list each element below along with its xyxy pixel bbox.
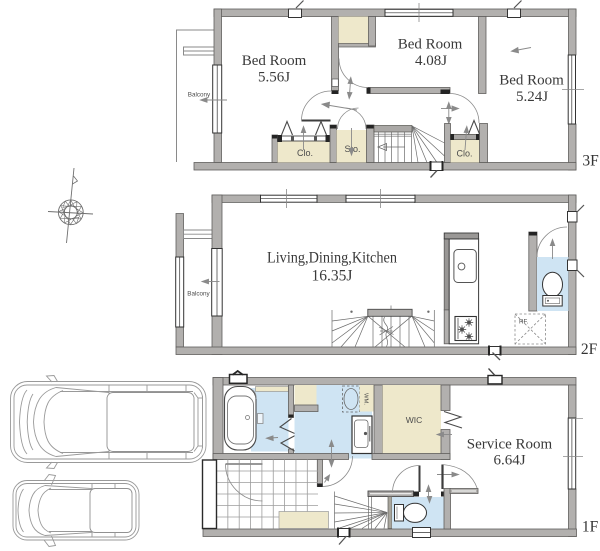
svg-text:RF.: RF.	[519, 319, 529, 326]
svg-text:5.24J: 5.24J	[516, 89, 548, 105]
svg-text:6.64J: 6.64J	[493, 453, 525, 469]
svg-text:4.08J: 4.08J	[415, 53, 447, 69]
svg-text:Clo.: Clo.	[297, 148, 313, 158]
svg-text:Bed Room: Bed Room	[242, 53, 307, 69]
svg-text:16.35J: 16.35J	[312, 267, 353, 284]
svg-text:5.56J: 5.56J	[258, 70, 290, 86]
svg-text:WIC: WIC	[406, 415, 423, 425]
svg-text:Living,Dining,Kitchen: Living,Dining,Kitchen	[267, 249, 397, 266]
svg-text:Bed Room: Bed Room	[398, 37, 463, 53]
svg-text:Clo.: Clo.	[456, 149, 472, 159]
svg-text:3F: 3F	[582, 153, 599, 170]
svg-text:2F: 2F	[581, 341, 598, 358]
svg-text:1F: 1F	[582, 519, 599, 536]
svg-text:Bed Room: Bed Room	[499, 73, 564, 89]
svg-text:Balcony: Balcony	[187, 291, 210, 298]
svg-text:WM.: WM.	[363, 393, 369, 405]
svg-text:Balcony: Balcony	[188, 92, 211, 99]
svg-text:Service Room: Service Room	[467, 437, 553, 453]
